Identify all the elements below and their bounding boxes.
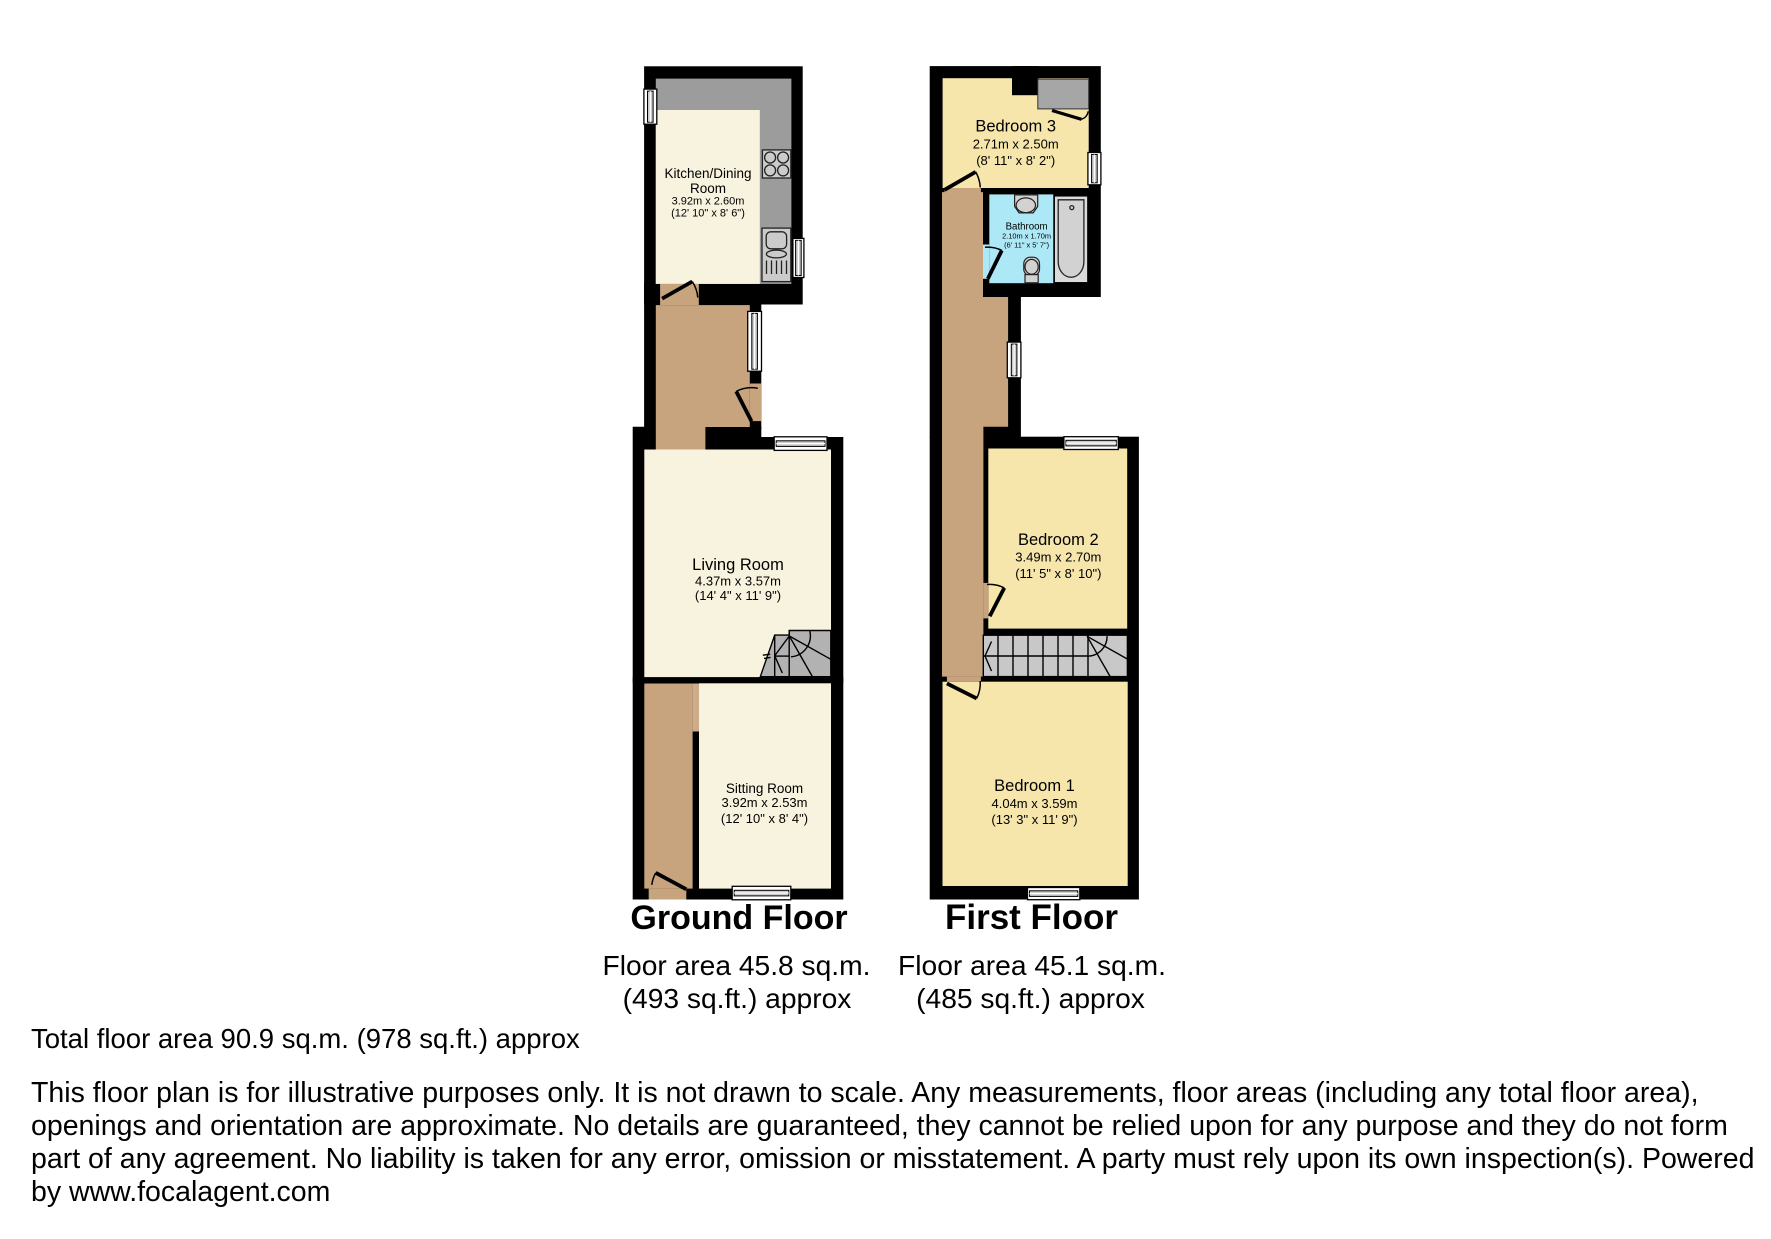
svg-text:openings and orientation are a: openings and orientation are approximate…: [31, 1110, 1728, 1142]
svg-text:by www.focalagent.com: by www.focalagent.com: [31, 1176, 330, 1208]
svg-text:This floor plan is for illustr: This floor plan is for illustrative purp…: [31, 1077, 1699, 1109]
svg-text:3.49m x 2.70m: 3.49m x 2.70m: [1015, 550, 1101, 565]
svg-text:(11' 5" x 8' 10"): (11' 5" x 8' 10"): [1015, 566, 1101, 581]
svg-text:Ground Floor: Ground Floor: [630, 899, 847, 937]
svg-text:Bedroom 2: Bedroom 2: [1018, 531, 1099, 549]
svg-text:(14' 4" x 11' 9"): (14' 4" x 11' 9"): [695, 588, 781, 603]
svg-text:(8' 11" x 8' 2"): (8' 11" x 8' 2"): [976, 153, 1055, 168]
svg-text:(493 sq.ft.) approx: (493 sq.ft.) approx: [623, 982, 852, 1014]
svg-text:(485 sq.ft.) approx: (485 sq.ft.) approx: [916, 982, 1145, 1014]
svg-text:2.71m x 2.50m: 2.71m x 2.50m: [973, 137, 1059, 152]
svg-text:(12' 10" x 8' 6"): (12' 10" x 8' 6"): [671, 208, 745, 220]
svg-text:part of any agreement. No liab: part of any agreement. No liability is t…: [31, 1143, 1754, 1175]
svg-text:(13' 3" x 11' 9"): (13' 3" x 11' 9"): [991, 812, 1077, 827]
svg-text:Bedroom 3: Bedroom 3: [975, 118, 1056, 136]
svg-text:Kitchen/Dining: Kitchen/Dining: [664, 166, 751, 181]
svg-text:Total floor area 90.9 sq.m. (9: Total floor area 90.9 sq.m. (978 sq.ft.)…: [31, 1023, 580, 1054]
svg-text:Room: Room: [690, 181, 726, 196]
svg-text:First Floor: First Floor: [945, 898, 1118, 937]
svg-text:3.92m x 2.53m: 3.92m x 2.53m: [722, 795, 808, 810]
svg-text:Sitting Room: Sitting Room: [726, 781, 803, 796]
svg-text:(6' 11" x 5' 7"): (6' 11" x 5' 7"): [1004, 241, 1049, 250]
svg-text:Living Room: Living Room: [692, 556, 784, 574]
svg-text:4.37m x 3.57m: 4.37m x 3.57m: [695, 574, 781, 589]
svg-text:2.10m x 1.70m: 2.10m x 1.70m: [1002, 231, 1051, 240]
svg-text:3.92m x 2.60m: 3.92m x 2.60m: [672, 196, 745, 208]
svg-text:4.04m x 3.59m: 4.04m x 3.59m: [992, 796, 1078, 811]
svg-text:Floor area 45.8 sq.m.: Floor area 45.8 sq.m.: [603, 949, 871, 981]
svg-text:Floor area 45.1 sq.m.: Floor area 45.1 sq.m.: [898, 949, 1166, 981]
svg-text:(12' 10" x 8' 4"): (12' 10" x 8' 4"): [721, 811, 808, 826]
svg-text:Bedroom 1: Bedroom 1: [994, 777, 1075, 795]
